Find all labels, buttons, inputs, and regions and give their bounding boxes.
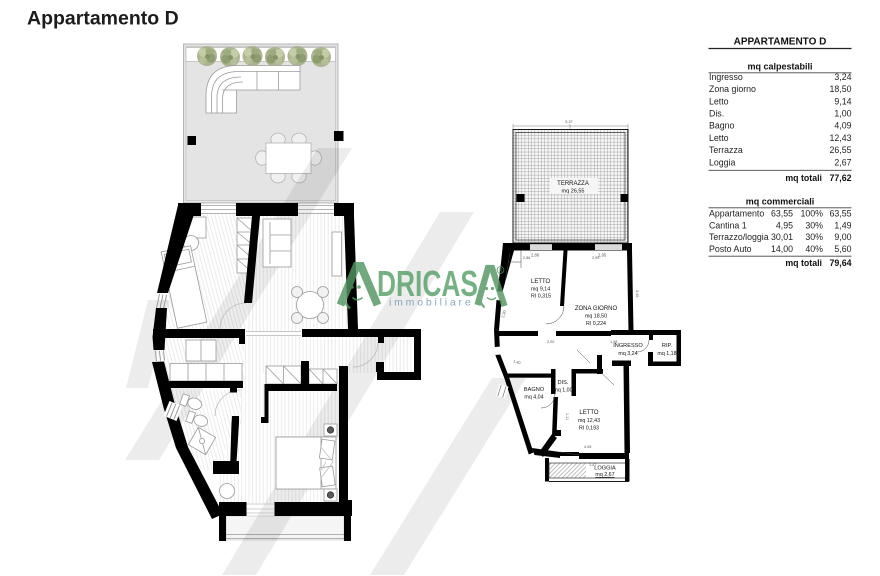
svg-text:Zona giorno: Zona giorno bbox=[709, 84, 756, 94]
svg-text:9,00: 9,00 bbox=[834, 232, 851, 242]
svg-text:1,47: 1,47 bbox=[589, 463, 596, 467]
svg-text:RI 0,315: RI 0,315 bbox=[531, 294, 551, 300]
svg-text:18,50: 18,50 bbox=[829, 84, 851, 94]
svg-text:2,95: 2,95 bbox=[592, 256, 599, 260]
svg-text:RIP.: RIP. bbox=[662, 343, 673, 349]
svg-text:mq 1,18: mq 1,18 bbox=[657, 351, 676, 357]
svg-text:BAGNO: BAGNO bbox=[524, 387, 545, 393]
svg-text:9,14: 9,14 bbox=[834, 96, 851, 106]
svg-text:Appartamento D: Appartamento D bbox=[27, 7, 179, 29]
svg-text:3,24: 3,24 bbox=[834, 72, 851, 82]
svg-text:Letto: Letto bbox=[709, 133, 729, 143]
svg-text:12,43: 12,43 bbox=[829, 133, 851, 143]
svg-text:R: R bbox=[499, 268, 503, 274]
svg-text:mq 3,24: mq 3,24 bbox=[618, 351, 637, 357]
svg-text:79,64: 79,64 bbox=[829, 258, 851, 268]
svg-text:1,49: 1,49 bbox=[834, 220, 851, 230]
svg-text:63,55: 63,55 bbox=[829, 209, 851, 219]
svg-text:mq commerciali: mq commerciali bbox=[746, 197, 815, 207]
svg-text:mq calpestabili: mq calpestabili bbox=[747, 62, 812, 72]
svg-text:mq 18,50: mq 18,50 bbox=[585, 314, 607, 320]
svg-text:mq 4,04: mq 4,04 bbox=[524, 395, 543, 401]
svg-text:Bagno: Bagno bbox=[709, 121, 735, 131]
svg-text:Loggia: Loggia bbox=[709, 157, 736, 167]
svg-text:4,09: 4,09 bbox=[834, 121, 851, 131]
svg-text:RI 0,193: RI 0,193 bbox=[579, 426, 599, 432]
svg-text:immobiliare: immobiliare bbox=[389, 297, 473, 309]
svg-text:TERRAZZA: TERRAZZA bbox=[557, 181, 589, 187]
svg-text:INGRESSO: INGRESSO bbox=[613, 343, 643, 349]
svg-text:Dis.: Dis. bbox=[709, 109, 724, 119]
svg-text:1,98: 1,98 bbox=[610, 340, 617, 344]
svg-text:2,67: 2,67 bbox=[834, 157, 851, 167]
svg-text:26,55: 26,55 bbox=[829, 145, 851, 155]
svg-text:mq 12,43: mq 12,43 bbox=[578, 418, 600, 424]
svg-text:mq totali: mq totali bbox=[785, 258, 822, 268]
svg-text:LOGGIA: LOGGIA bbox=[594, 466, 616, 472]
svg-text:3,45: 3,45 bbox=[635, 290, 639, 297]
svg-text:5,60: 5,60 bbox=[834, 244, 851, 254]
svg-text:Terrazzo/loggia: Terrazzo/loggia bbox=[709, 232, 769, 242]
svg-text:ZONA GIORNO: ZONA GIORNO bbox=[575, 306, 618, 312]
svg-text:2,86: 2,86 bbox=[523, 256, 530, 260]
svg-text:Appartamento: Appartamento bbox=[709, 209, 764, 219]
svg-text:mq totali: mq totali bbox=[785, 173, 822, 183]
svg-text:LETTO: LETTO bbox=[579, 410, 599, 416]
svg-text:2,00: 2,00 bbox=[547, 340, 554, 344]
svg-text:LETTO: LETTO bbox=[531, 279, 551, 285]
svg-text:mq 9,14: mq 9,14 bbox=[531, 287, 550, 293]
svg-text:Cantina 1: Cantina 1 bbox=[709, 220, 747, 230]
svg-text:63,55: 63,55 bbox=[771, 209, 793, 219]
svg-text:4,08: 4,08 bbox=[584, 445, 591, 449]
svg-text:30%: 30% bbox=[805, 232, 823, 242]
svg-text:14,00: 14,00 bbox=[771, 244, 793, 254]
svg-text:40%: 40% bbox=[805, 244, 823, 254]
svg-text:DIS.: DIS. bbox=[558, 380, 569, 386]
svg-text:77,62: 77,62 bbox=[829, 173, 851, 183]
svg-text:100%: 100% bbox=[801, 209, 824, 219]
svg-text:Ingresso: Ingresso bbox=[709, 72, 743, 82]
svg-text:Letto: Letto bbox=[709, 96, 729, 106]
svg-text:RI 0,224: RI 0,224 bbox=[586, 321, 606, 327]
svg-text:2,86: 2,86 bbox=[531, 253, 540, 258]
svg-text:Posto Auto: Posto Auto bbox=[709, 244, 752, 254]
svg-text:30,01: 30,01 bbox=[771, 232, 793, 242]
svg-text:Terrazza: Terrazza bbox=[709, 145, 743, 155]
svg-text:1,00: 1,00 bbox=[834, 109, 851, 119]
svg-text:5,37: 5,37 bbox=[565, 120, 572, 124]
svg-text:30%: 30% bbox=[805, 220, 823, 230]
svg-text:APPARTAMENTO D: APPARTAMENTO D bbox=[734, 37, 827, 48]
svg-text:mq 26,55: mq 26,55 bbox=[562, 189, 585, 195]
svg-text:mq 1,00: mq 1,00 bbox=[553, 388, 572, 394]
svg-text:mq 2,67: mq 2,67 bbox=[595, 472, 614, 478]
svg-text:4,95: 4,95 bbox=[776, 220, 793, 230]
svg-text:1,11: 1,11 bbox=[565, 413, 569, 420]
